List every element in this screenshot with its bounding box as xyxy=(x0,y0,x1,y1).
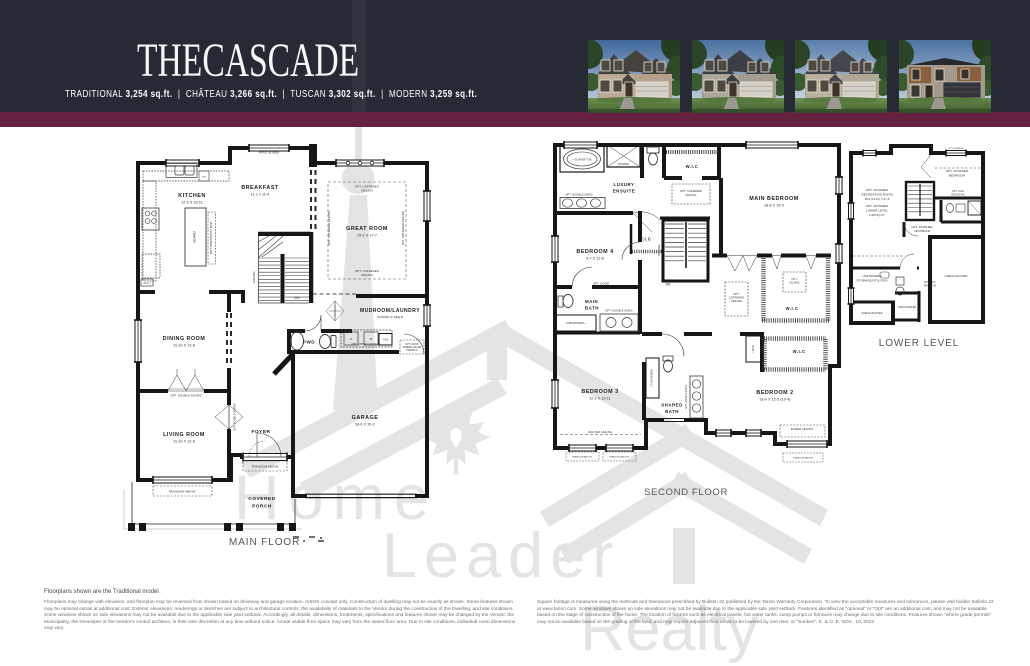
svg-text:BEDROOM 4: BEDROOM 4 xyxy=(576,249,613,255)
svg-text:OPT. DOOR: OPT. DOOR xyxy=(593,282,609,286)
svg-text:CEILING: CEILING xyxy=(731,299,742,303)
svg-text:OPT. DOUBLE DOORS: OPT. DOUBLE DOORS xyxy=(233,403,237,431)
svg-text:TRANSOM ABOVE: TRANSOM ABOVE xyxy=(251,465,278,469)
svg-text:GREAT ROOM: GREAT ROOM xyxy=(346,226,388,232)
svg-text:W.I.C: W.I.C xyxy=(639,237,652,242)
svg-text:TRANSOM ABOVE: TRANSOM ABOVE xyxy=(609,456,630,459)
svg-text:OPT. COFFERED CEILING: OPT. COFFERED CEILING xyxy=(401,211,405,245)
svg-text:TRANSOM ABOVE: TRANSOM ABOVE xyxy=(168,490,195,494)
svg-text:11-10 X 13-8: 11-10 X 13-8 xyxy=(173,344,195,348)
svg-text:18-9 X 12-5 (10-4): 18-9 X 12-5 (10-4) xyxy=(759,398,790,402)
svg-text:GARAGE: GARAGE xyxy=(352,415,379,421)
svg-text:PWD: PWD xyxy=(303,340,315,345)
svg-text:OPT. FINISHED: OPT. FINISHED xyxy=(946,169,970,173)
svg-text:1,008 SQ.FT.: 1,008 SQ.FT. xyxy=(869,213,886,217)
svg-text:BEDROOM 2: BEDROOM 2 xyxy=(756,390,793,396)
svg-text:15-2 X 17-7: 15-2 X 17-7 xyxy=(357,234,377,238)
svg-text:RECREATION ROOM: RECREATION ROOM xyxy=(861,193,893,197)
svg-text:OPT. DOUBLE SINKS: OPT. DOUBLE SINKS xyxy=(685,385,688,409)
svg-text:TUB: TUB xyxy=(383,339,388,342)
svg-text:OPT. COFFERED CEILING: OPT. COFFERED CEILING xyxy=(327,211,331,245)
svg-text:UNEXCAVATED: UNEXCAVATED xyxy=(898,306,917,309)
svg-text:WHERE GRADE: WHERE GRADE xyxy=(403,346,422,349)
svg-text:ISLAND: ISLAND xyxy=(790,281,800,285)
svg-text:MAIN FLOOR: MAIN FLOOR xyxy=(229,537,300,548)
svg-text:BATH: BATH xyxy=(665,409,679,414)
svg-text:12-3 X 16-11: 12-3 X 16-11 xyxy=(181,201,203,205)
svg-text:UNEXCAVATED: UNEXCAVATED xyxy=(945,274,969,278)
svg-text:18-0 (13-10) X 27-6: 18-0 (13-10) X 27-6 xyxy=(865,197,890,201)
svg-text:BATH: BATH xyxy=(585,306,599,311)
svg-text:MAIN: MAIN xyxy=(585,299,598,304)
svg-text:W.I.C: W.I.C xyxy=(786,306,799,311)
svg-text:RAISED CEILING: RAISED CEILING xyxy=(791,427,813,431)
svg-text:VAULTED CEILING: VAULTED CEILING xyxy=(588,430,612,434)
svg-text:OPT. DOUBLE DOORS: OPT. DOUBLE DOORS xyxy=(170,394,201,398)
svg-text:ISLAND: ISLAND xyxy=(193,231,197,243)
svg-text:DINING ROOM: DINING ROOM xyxy=(163,336,206,342)
svg-text:9-7 X 11-8: 9-7 X 11-8 xyxy=(586,257,604,261)
svg-text:OPT.: OPT. xyxy=(791,277,797,281)
svg-text:W.I.C: W.I.C xyxy=(686,164,699,169)
svg-text:TRANSOM ABOVE: TRANSOM ABOVE xyxy=(572,456,593,459)
svg-text:OPT. COFFERED: OPT. COFFERED xyxy=(680,189,702,193)
svg-text:OPT. DOUBLE SINKS: OPT. DOUBLE SINKS xyxy=(565,193,593,197)
svg-text:LOWER LEVEL: LOWER LEVEL xyxy=(879,338,959,349)
svg-text:OPT.: OPT. xyxy=(733,292,739,296)
svg-text:Leader: Leader xyxy=(382,521,620,591)
svg-text:BREAKFAST: BREAKFAST xyxy=(241,185,279,191)
svg-text:VESTIBULE: VESTIBULE xyxy=(914,229,930,233)
svg-text:SECOND FLOOR: SECOND FLOOR xyxy=(644,487,728,498)
svg-text:+ SOAKER TUB: + SOAKER TUB xyxy=(573,159,592,162)
svg-text:OPT. EGRESS: OPT. EGRESS xyxy=(948,148,964,150)
svg-text:PERMITS: PERMITS xyxy=(407,350,418,352)
svg-text:CEILING: CEILING xyxy=(361,189,373,193)
svg-text:SHARED: SHARED xyxy=(661,403,683,408)
svg-text:STORAGE/UTILITIES: STORAGE/UTILITIES xyxy=(856,279,887,283)
svg-text:OPT. BREAKFAST BAR: OPT. BREAKFAST BAR xyxy=(209,221,213,254)
svg-text:OPT. FINISHED: OPT. FINISHED xyxy=(866,204,890,208)
svg-text:RAILING: RAILING xyxy=(252,271,256,282)
svg-text:SHOWER: SHOWER xyxy=(618,164,629,166)
svg-text:UNEXCAVATED: UNEXCAVATED xyxy=(861,311,882,315)
svg-text:PORCH: PORCH xyxy=(252,504,272,510)
svg-text:LUXURY: LUXURY xyxy=(614,182,635,187)
svg-text:CEILING: CEILING xyxy=(361,273,373,277)
svg-text:SUNKEN IF REQ'D: SUNKEN IF REQ'D xyxy=(377,315,403,319)
svg-text:ROUGH-IN: ROUGH-IN xyxy=(952,194,965,197)
svg-text:TUB/SHOWER +: TUB/SHOWER + xyxy=(566,322,587,325)
svg-text:W: W xyxy=(370,337,373,341)
svg-text:COFFERED: COFFERED xyxy=(729,296,744,300)
svg-text:MAIN BEDROOM: MAIN BEDROOM xyxy=(749,196,798,202)
svg-text:18-0 X 20-2: 18-0 X 20-2 xyxy=(355,423,375,427)
svg-text:W.I.C: W.I.C xyxy=(793,349,806,354)
svg-text:DN: DN xyxy=(666,283,671,287)
svg-text:LINEN: LINEN xyxy=(752,345,755,353)
svg-text:BEDROOM 3: BEDROOM 3 xyxy=(581,389,618,395)
svg-text:1 TUB/SHOWER: 1 TUB/SHOWER xyxy=(651,369,654,387)
svg-text:PANTRY: PANTRY xyxy=(143,282,151,285)
svg-text:BEDROOM: BEDROOM xyxy=(949,174,966,178)
svg-text:COVERED: COVERED xyxy=(248,496,275,502)
svg-text:DW: DW xyxy=(202,177,207,179)
svg-text:18-8 X 15-9: 18-8 X 15-9 xyxy=(764,204,784,208)
svg-text:DN: DN xyxy=(294,296,300,300)
svg-text:ENSUITE: ENSUITE xyxy=(613,189,636,194)
svg-text:OPT. 3 PC.: OPT. 3 PC. xyxy=(924,282,937,284)
svg-text:OPT. FINISHED: OPT. FINISHED xyxy=(866,188,890,192)
svg-text:MUDROOM/LAUNDRY: MUDROOM/LAUNDRY xyxy=(360,308,420,314)
svg-text:TRANSOM ABOVE: TRANSOM ABOVE xyxy=(793,457,814,460)
svg-text:PATIO SLIDER: PATIO SLIDER xyxy=(259,151,279,155)
svg-text:LOWER LEVEL: LOWER LEVEL xyxy=(866,209,889,213)
svg-text:11-10 X 12-6: 11-10 X 12-6 xyxy=(173,440,195,444)
svg-text:OPT. DOOR: OPT. DOOR xyxy=(405,344,419,346)
svg-text:UNFINISHED: UNFINISHED xyxy=(862,274,882,278)
svg-text:KITCHEN: KITCHEN xyxy=(178,193,205,199)
svg-text:12-2 X 13-11: 12-2 X 13-11 xyxy=(589,397,611,401)
svg-text:11-1 x 11-4: 11-1 x 11-4 xyxy=(251,193,270,197)
svg-text:OPT. UPPER CABINETS: OPT. UPPER CABINETS xyxy=(352,343,381,346)
svg-text:D: D xyxy=(350,337,352,341)
svg-text:CEILING: CEILING xyxy=(685,193,696,197)
svg-text:FOYER: FOYER xyxy=(251,429,270,435)
svg-text:LIVING ROOM: LIVING ROOM xyxy=(163,432,205,438)
svg-text:OPT. DOUBLE SINKS: OPT. DOUBLE SINKS xyxy=(605,309,633,313)
svg-text:ROUGH-IN: ROUGH-IN xyxy=(924,286,937,288)
